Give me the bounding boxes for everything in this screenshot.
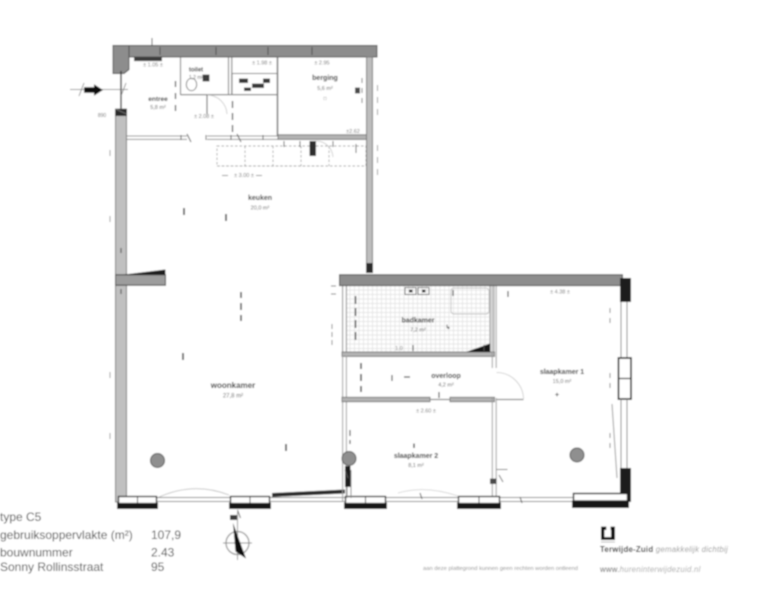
svg-text:bouwnummer: bouwnummer [0,546,73,560]
svg-text:aan deze plattegrond kunnen ge: aan deze plattegrond kunnen geen rechten… [423,566,578,572]
svg-text:□: □ [323,96,326,102]
svg-text:27,8 m²: 27,8 m² [223,394,243,400]
svg-text:↳: ↳ [445,324,450,331]
svg-text:±2.62: ±2.62 [346,129,360,135]
svg-text:± 4.38 ±: ± 4.38 ± [550,290,570,296]
svg-text:badkamer: badkamer [401,318,434,325]
svg-text:overloop: overloop [431,373,461,380]
svg-text:gebruiksoppervlakte (m²): gebruiksoppervlakte (m²) [0,528,133,542]
svg-text:berging: berging [312,75,338,82]
svg-text:woonkamer: woonkamer [210,381,255,390]
svg-text:Terwijde-Zuid gemakkelijk dich: Terwijde-Zuid gemakkelijk dichtbij [600,545,728,554]
svg-text:7,2 m²: 7,2 m² [410,328,426,334]
svg-text:20,0 m²: 20,0 m² [251,206,270,212]
svg-text:107,9: 107,9 [151,528,181,542]
svg-text:15,0 m²: 15,0 m² [553,379,572,385]
svg-text:slaapkamer 2: slaapkamer 2 [394,453,438,460]
svg-text:toilet: toilet [189,68,203,74]
svg-text:± 2.60 ±: ± 2.60 ± [416,409,436,415]
svg-text:Sonny Rollinsstraat: Sonny Rollinsstraat [0,560,104,574]
svg-text:2.43: 2.43 [151,546,175,560]
svg-text:± 3.00 ±: ± 3.00 ± [234,173,254,179]
svg-text:4,2 m²: 4,2 m² [438,383,454,389]
svg-text:5,6 m²: 5,6 m² [317,86,333,92]
svg-text:890: 890 [98,113,107,119]
svg-text:1,2 m²: 1,2 m² [189,75,204,81]
svg-text:95: 95 [151,560,165,574]
svg-text:1.0: 1.0 [395,346,403,352]
svg-text:5,8 m²: 5,8 m² [150,105,166,111]
svg-text:+: + [555,392,559,399]
svg-text:± 2.95: ± 2.95 [314,61,329,67]
svg-text:type C5: type C5 [0,510,42,524]
svg-text:keuken: keuken [248,195,272,202]
svg-text:± 1.98 ±: ± 1.98 ± [252,61,272,67]
svg-text:8,1 m²: 8,1 m² [408,463,424,469]
svg-text:± 2.08 ±: ± 2.08 ± [194,114,214,120]
svg-text:www.hureninterwijdezuid.nl: www.hureninterwijdezuid.nl [599,565,701,574]
svg-text:entree: entree [148,96,168,103]
svg-text:± 1.05 ±: ± 1.05 ± [143,63,163,69]
svg-text:slaapkamer 1: slaapkamer 1 [540,369,584,376]
